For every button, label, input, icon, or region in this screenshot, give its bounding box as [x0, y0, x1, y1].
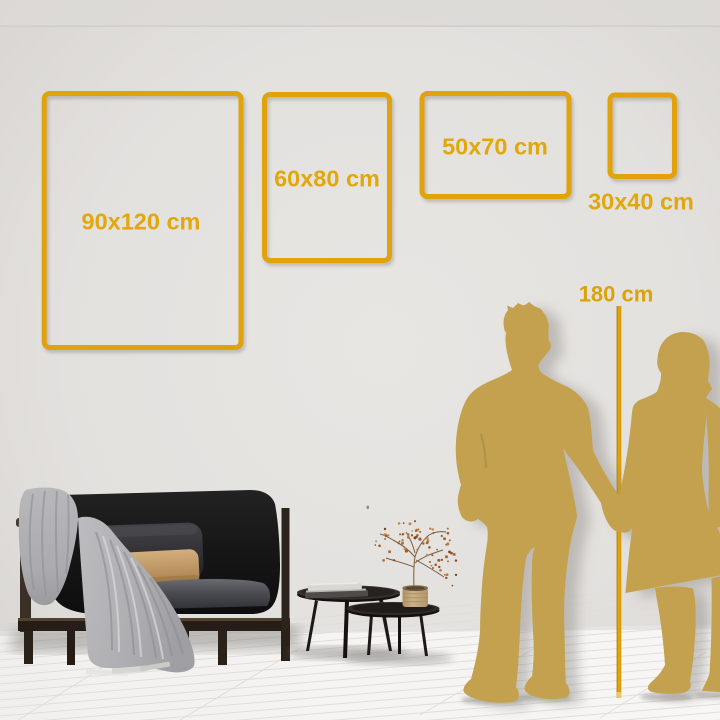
- svg-text:180 cm: 180 cm: [579, 282, 654, 307]
- svg-text:90x120 cm: 90x120 cm: [82, 209, 201, 235]
- svg-text:30x40 cm: 30x40 cm: [588, 189, 694, 215]
- svg-text:60x80 cm: 60x80 cm: [274, 166, 380, 192]
- svg-text:50x70 cm: 50x70 cm: [442, 134, 548, 160]
